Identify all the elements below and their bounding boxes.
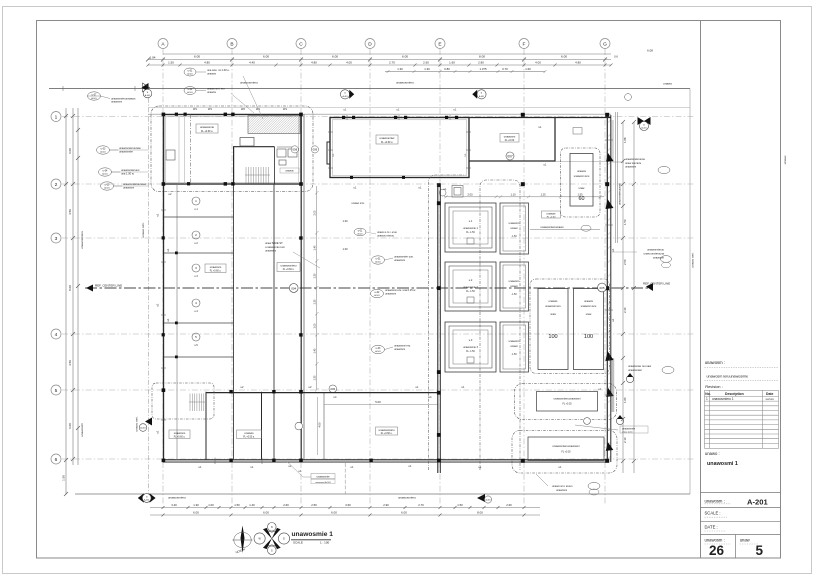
- svg-text:1.30: 1.30: [313, 299, 316, 304]
- svg-text:u.3: u.3: [194, 275, 198, 278]
- svg-text:A-201: A-201: [747, 498, 768, 507]
- svg-text:4.50: 4.50: [68, 209, 72, 215]
- svg-text:u-01: u-01: [376, 257, 381, 260]
- svg-text:A-401: A-401: [342, 95, 347, 98]
- svg-text:unawosmieruunawo: unawosmieruunawo: [123, 182, 147, 186]
- svg-text:unawosmieru 1: unawosmieru 1: [712, 397, 734, 401]
- svg-text:unawo :: unawo :: [705, 451, 720, 456]
- svg-text:u.2: u.2: [194, 242, 198, 245]
- svg-text:unawosmi eru. una 0.15 w.: unawosmi eru. una 0.15 w.: [385, 288, 416, 292]
- svg-text:unawosmi: unawosmi: [80, 423, 84, 437]
- svg-text:u.3: u.3: [469, 338, 473, 342]
- svg-text:6.00: 6.00: [68, 423, 72, 429]
- svg-text:unawosm ieru: unawosm ieru: [581, 305, 597, 308]
- svg-text:unawosmie 2: unawosmie 2: [463, 286, 478, 289]
- svg-text:SCALE: SCALE: [293, 541, 303, 545]
- svg-text:007: 007: [507, 154, 513, 158]
- svg-text:unaw: unaw: [579, 187, 585, 190]
- svg-text:unawosmieruunaw: unawosmieruunaw: [618, 183, 622, 205]
- svg-text:REF. CENTER LINE: REF. CENTER LINE: [643, 282, 670, 286]
- svg-text:unawosm ieru: unawosm ieru: [574, 175, 590, 178]
- svg-text:unawos: unawos: [549, 300, 559, 303]
- svg-text:unawosm :: unawosm :: [705, 360, 725, 365]
- svg-text:unawos: unawos: [207, 91, 217, 94]
- svg-text:unawosmi 1: unawosmi 1: [707, 461, 738, 467]
- svg-text:unawos: unawos: [244, 432, 254, 435]
- svg-text:A-501: A-501: [187, 91, 193, 94]
- svg-text:2.70: 2.70: [418, 503, 424, 507]
- svg-text:F: F: [523, 41, 526, 47]
- svg-text:-1.50: -1.50: [511, 294, 517, 296]
- svg-text:1.30: 1.30: [342, 247, 348, 251]
- svg-text:G: G: [603, 41, 607, 47]
- svg-text:unawosm: unawosm: [653, 257, 664, 260]
- svg-text:unawo smi. eru: unawo smi. eru: [207, 87, 225, 91]
- svg-text:N: N: [271, 526, 273, 529]
- svg-text:unaw: unaw: [586, 314, 592, 316]
- svg-text:6.00: 6.00: [263, 55, 269, 59]
- svg-text:2.50: 2.50: [311, 503, 317, 507]
- svg-text:A-501: A-501: [91, 97, 97, 100]
- svg-text:unawosm: unawosm: [509, 340, 520, 343]
- svg-text:6.00: 6.00: [401, 511, 407, 515]
- svg-text:100: 100: [548, 334, 557, 340]
- svg-text:unawosmie: unawosmie: [622, 427, 636, 431]
- svg-text:2.70: 2.70: [389, 61, 395, 65]
- svg-text:1.30: 1.30: [313, 273, 316, 278]
- svg-text:6.00: 6.00: [263, 511, 269, 515]
- svg-text:FL -1.50: FL -1.50: [466, 232, 475, 234]
- svg-text:2.60: 2.60: [283, 503, 289, 507]
- svg-text:unaw SAVE ST.: unaw SAVE ST.: [265, 241, 283, 245]
- svg-text:5: 5: [756, 543, 764, 558]
- svg-text:unawosm: unawosm: [210, 266, 222, 269]
- svg-text:Description: Description: [725, 392, 744, 396]
- svg-text:unawosm ieruunawosmie: unawosm ieruunawosmie: [707, 375, 749, 379]
- svg-text:unawo: unawo: [783, 155, 787, 164]
- svg-text:unawos: unawos: [285, 170, 294, 173]
- svg-text:5.00: 5.00: [375, 400, 381, 404]
- svg-text:3.60: 3.60: [345, 503, 351, 507]
- svg-text:1.88: 1.88: [623, 137, 627, 143]
- svg-text:unawosmieruu: unawosmieruu: [647, 248, 664, 252]
- svg-text:unawosmieruun: unawosmieruun: [121, 168, 140, 172]
- svg-text:unawosm: unawosm: [509, 280, 520, 283]
- svg-text:unawosmier uun.: unawosmier uun.: [394, 255, 414, 259]
- svg-text:1.04: 1.04: [149, 55, 155, 59]
- svg-text:unawo: unawo: [663, 82, 672, 86]
- svg-text:4.80: 4.80: [311, 61, 317, 65]
- svg-text:u-01: u-01: [358, 230, 363, 232]
- svg-text:unawosmier: unawosmier: [379, 136, 394, 140]
- svg-text:SCALE :: SCALE :: [705, 511, 721, 516]
- svg-text:2.60: 2.60: [506, 503, 512, 507]
- svg-text:6.00: 6.00: [332, 55, 338, 59]
- svg-text:unawos: unawos: [584, 300, 594, 303]
- svg-text:4.80: 4.80: [575, 61, 581, 65]
- svg-text:u.1: u.1: [469, 219, 473, 223]
- svg-text:1: 1: [55, 114, 58, 120]
- svg-text:6.08: 6.08: [647, 49, 653, 53]
- svg-text:3.40: 3.40: [171, 503, 177, 507]
- svg-text:u-01: u-01: [188, 69, 193, 72]
- svg-text:unawosmie 3: unawosmie 3: [463, 346, 478, 349]
- svg-text:100: 100: [584, 334, 593, 340]
- svg-text:1.25: 1.25: [540, 193, 546, 197]
- svg-text:unawosm: unawosm: [111, 101, 122, 104]
- svg-text:4.40: 4.40: [249, 61, 255, 65]
- svg-text:1.30: 1.30: [193, 503, 199, 507]
- svg-text:unawosmieruunawosmi: unawosmieruunawosmi: [553, 397, 581, 401]
- svg-text:A-501: A-501: [357, 233, 362, 236]
- svg-text:6.00: 6.00: [194, 55, 200, 59]
- svg-text:A-401: A-401: [485, 499, 490, 502]
- svg-text:FL +0.60 u.: FL +0.60 u.: [201, 130, 213, 133]
- svg-text:una wos. mi 1.00 e.: una wos. mi 1.00 e.: [207, 68, 230, 72]
- svg-text:unawo smi.: unawo smi.: [351, 201, 364, 205]
- svg-text:-1.50: -1.50: [511, 354, 517, 356]
- svg-text:008: 008: [292, 148, 297, 152]
- svg-text:1.50: 1.50: [62, 475, 66, 481]
- svg-text:4: 4: [55, 332, 58, 338]
- svg-text:5: 5: [55, 388, 58, 394]
- svg-text:26: 26: [709, 543, 725, 558]
- svg-text:unawosmieru: unawosmieru: [379, 428, 395, 432]
- svg-text:FL +0.60 u.: FL +0.60 u.: [381, 433, 393, 435]
- svg-text:A-401: A-401: [479, 95, 484, 98]
- svg-text:unawosmieruunawosmi: unawosmieruunawosmi: [552, 444, 580, 448]
- svg-text:u.1: u.1: [194, 208, 198, 211]
- svg-text:unawosm: unawosm: [174, 432, 186, 435]
- svg-text:6.00: 6.00: [331, 511, 337, 515]
- svg-text:FL +0.60 u.: FL +0.60 u.: [174, 436, 186, 438]
- svg-text:1.30: 1.30: [424, 67, 430, 71]
- svg-text:A-401: A-401: [145, 94, 151, 97]
- svg-text:No.: No.: [705, 392, 711, 396]
- svg-text:unawo: unawo: [510, 227, 518, 230]
- svg-text:unawosm: unawosm: [625, 166, 636, 169]
- svg-text:unawosm :: unawosm :: [705, 538, 725, 543]
- svg-text:unawo smi.: unawo smi.: [135, 416, 139, 431]
- svg-text:1.30: 1.30: [313, 375, 316, 380]
- svg-text:A-501: A-501: [104, 187, 110, 190]
- svg-text:unawosm: unawosm: [123, 186, 134, 189]
- svg-text:1.10: 1.10: [510, 193, 516, 197]
- svg-text:4.00: 4.00: [535, 61, 541, 65]
- svg-text:unawosm: unawosm: [394, 348, 405, 351]
- svg-text:60: 60: [579, 196, 585, 202]
- svg-text:unawosmie: unawosmie: [200, 125, 215, 129]
- svg-text:1.375: 1.375: [480, 67, 487, 71]
- svg-text:6.00: 6.00: [561, 55, 567, 59]
- svg-text:8.00: 8.00: [477, 511, 483, 515]
- svg-text:E: E: [438, 41, 441, 47]
- svg-text:1: 1: [706, 397, 708, 401]
- svg-text:unaw: unaw: [550, 314, 556, 316]
- svg-text:1.80: 1.80: [623, 397, 627, 403]
- svg-text:A-401: A-401: [641, 127, 647, 130]
- svg-text:A-501: A-501: [375, 350, 381, 353]
- svg-text:u-04: u-04: [103, 169, 108, 172]
- svg-text:0.70: 0.70: [502, 67, 508, 71]
- svg-text:1.50: 1.50: [234, 503, 240, 507]
- svg-text:unawosmieruunaw: unawosmieruunaw: [119, 146, 141, 150]
- svg-text:FL -1.50: FL -1.50: [466, 351, 475, 353]
- svg-text:4.80: 4.80: [204, 61, 210, 65]
- svg-text:2.50: 2.50: [623, 259, 627, 265]
- svg-text:unawosmie 1: unawosmie 1: [463, 227, 478, 230]
- svg-text:unawosm :: unawosm :: [705, 499, 725, 504]
- svg-text:A-501: A-501: [375, 261, 381, 264]
- svg-text:D: D: [368, 41, 372, 47]
- svg-text:4.50: 4.50: [68, 360, 72, 366]
- svg-text:unawosmieru: unawosmieru: [396, 81, 414, 85]
- svg-text:W1: W1: [193, 107, 197, 111]
- svg-text:unaw osmi: unaw osmi: [622, 431, 633, 433]
- svg-text:2.60: 2.60: [423, 61, 429, 65]
- svg-text:unawosmieruunawos: unawosmieruunawos: [111, 96, 136, 100]
- svg-text:xx/xxx: xx/xxx: [766, 397, 775, 401]
- svg-text:unawo smi.: unawo smi.: [141, 222, 145, 237]
- svg-text:FL +0.30: FL +0.30: [562, 404, 572, 406]
- svg-text:unawos: unawos: [547, 213, 557, 216]
- svg-text:A-501: A-501: [102, 173, 108, 176]
- svg-text:unawos: unawos: [577, 170, 587, 173]
- svg-text:unawosmie: unawosmie: [316, 474, 330, 478]
- svg-text:2.10: 2.10: [623, 437, 627, 443]
- svg-text:4.00: 4.00: [346, 61, 352, 65]
- svg-text:unaw: unaw: [740, 538, 751, 543]
- svg-text:2.80: 2.80: [478, 61, 484, 65]
- svg-text:u.5: u.5: [194, 344, 198, 347]
- svg-text:1.50: 1.50: [623, 219, 627, 225]
- svg-text:6.00: 6.00: [68, 148, 72, 154]
- svg-text:2.00: 2.00: [467, 193, 473, 197]
- svg-text:unawosmi eru.: unawosmi eru.: [394, 344, 411, 348]
- svg-text:C: C: [299, 41, 303, 47]
- svg-text:FL +0.30: FL +0.30: [547, 216, 556, 218]
- svg-text:1.60: 1.60: [449, 61, 455, 65]
- svg-text:unawosm ieru: unawosm ieru: [545, 305, 561, 308]
- svg-text:1.30: 1.30: [342, 219, 348, 223]
- svg-text:006: 006: [330, 387, 335, 391]
- svg-text:A-501: A-501: [187, 73, 193, 76]
- svg-text:8.00: 8.00: [68, 285, 72, 291]
- svg-text:unaw osmieru: unaw osmieru: [625, 161, 642, 165]
- svg-text:2.00: 2.00: [313, 210, 316, 215]
- svg-text:unawo: unawo: [510, 345, 518, 348]
- svg-text:unawosmieru: unawosmieru: [281, 264, 297, 268]
- svg-text:W1: W1: [208, 107, 212, 111]
- svg-text:FL +0.60: FL +0.60: [505, 139, 515, 142]
- svg-text:unaw osmieruuna: unaw osmieruuna: [644, 252, 665, 256]
- svg-text:unawo: unawo: [510, 285, 518, 288]
- svg-text:3: 3: [55, 236, 58, 242]
- svg-text:unawosmieru: unawosmieru: [80, 231, 84, 249]
- svg-text:unawosmier: unawosmier: [628, 368, 642, 372]
- svg-text:0.80: 0.80: [444, 67, 450, 71]
- svg-text:4.00: 4.00: [318, 422, 322, 428]
- svg-text:6.00: 6.00: [402, 55, 408, 59]
- svg-text:unawos: unawos: [207, 72, 217, 75]
- svg-text:unawosmieru: unawosmieru: [398, 496, 416, 500]
- svg-text:unawosmieruunawo: unawosmieruunawo: [540, 225, 564, 229]
- svg-text:unawosm: unawosm: [265, 250, 276, 253]
- svg-text:B: B: [230, 41, 233, 47]
- svg-text:unawo smi.: unawo smi.: [691, 252, 695, 267]
- svg-text:u.2: u.2: [469, 278, 473, 282]
- svg-text:8.00: 8.00: [479, 55, 485, 59]
- svg-text:2.30: 2.30: [623, 307, 627, 313]
- svg-text:2: 2: [55, 182, 58, 188]
- svg-text:unawos mieruu: unawos mieruu: [377, 234, 395, 237]
- svg-text:unawosm: unawosm: [509, 222, 520, 225]
- svg-text:FL +0.60 u.: FL +0.60 u.: [381, 141, 393, 144]
- svg-text:004: 004: [291, 286, 296, 290]
- svg-text:FL +0.55 u.: FL +0.55 u.: [243, 436, 255, 438]
- svg-text:FL +0.60 u.: FL +0.60 u.: [283, 269, 295, 271]
- svg-text:u-03: u-03: [376, 347, 381, 350]
- svg-text:6: 6: [55, 457, 58, 463]
- svg-text:unawo smi. eruun: unawo smi. eruun: [552, 484, 573, 488]
- svg-text:u.nawosmie ruun: u.nawosmie ruun: [265, 245, 285, 249]
- svg-text:-1.50: -1.50: [511, 236, 517, 238]
- svg-text:DATE :: DATE :: [705, 525, 718, 530]
- svg-text:A-501: A-501: [100, 151, 106, 154]
- svg-text:1.50: 1.50: [457, 503, 463, 507]
- svg-text:1.50: 1.50: [168, 61, 174, 65]
- svg-text:Revision :: Revision :: [705, 384, 723, 389]
- svg-text:REF. CENTER LINE: REF. CENTER LINE: [95, 284, 122, 288]
- svg-text:u.4: u.4: [194, 310, 198, 313]
- svg-text:unawosm: unawosm: [394, 259, 405, 262]
- svg-text:FL +0.60 u.: FL +0.60 u.: [210, 270, 222, 272]
- svg-text:unawosmieru: unawosmieru: [168, 496, 186, 500]
- svg-text:u-07: u-07: [92, 93, 97, 96]
- svg-text:unawosmie 1: unawosmie 1: [292, 531, 334, 538]
- svg-text:unawosm: unawosm: [556, 489, 567, 492]
- svg-text:FL -1.50: FL -1.50: [466, 291, 475, 293]
- svg-text:A-501: A-501: [374, 294, 380, 297]
- svg-text:6.00: 6.00: [193, 511, 199, 515]
- svg-text:u-02: u-02: [188, 88, 193, 91]
- svg-text:1.60: 1.60: [525, 67, 531, 71]
- svg-text:u-02: u-02: [375, 291, 380, 294]
- svg-text:W1: W1: [283, 107, 287, 111]
- svg-text:1.40: 1.40: [249, 503, 255, 507]
- svg-text:0.6: 0.6: [614, 55, 618, 59]
- svg-text:1 : 100: 1 : 100: [320, 541, 330, 545]
- svg-text:unawosmieru: unawosmieru: [240, 81, 258, 85]
- svg-text:A-401: A-401: [144, 499, 149, 502]
- svg-text:005: 005: [599, 286, 604, 290]
- svg-text:2.90: 2.90: [383, 503, 389, 507]
- svg-text:1.30: 1.30: [397, 67, 403, 71]
- svg-text:unawosmieruuna: unawosmieruuna: [625, 157, 645, 161]
- svg-text:unawosmie ruu.naw: unawosmie ruu.naw: [628, 364, 651, 368]
- svg-text:unawosmi A-501: unawosmi A-501: [315, 481, 331, 484]
- svg-text:unawosm: unawosm: [385, 292, 396, 295]
- svg-text:u-05: u-05: [105, 183, 110, 186]
- svg-text:1.45: 1.45: [313, 348, 316, 353]
- svg-text:W2: W2: [241, 107, 245, 111]
- svg-text:A-401: A-401: [140, 427, 146, 430]
- svg-text:1.40: 1.40: [313, 245, 316, 250]
- svg-text:Date: Date: [766, 392, 773, 396]
- svg-text:FL +0.30: FL +0.30: [561, 452, 571, 454]
- svg-text:009: 009: [313, 148, 318, 152]
- svg-text:1.00: 1.00: [208, 503, 214, 507]
- svg-text:u-03: u-03: [101, 147, 106, 150]
- svg-text:1.05: 1.05: [313, 323, 316, 328]
